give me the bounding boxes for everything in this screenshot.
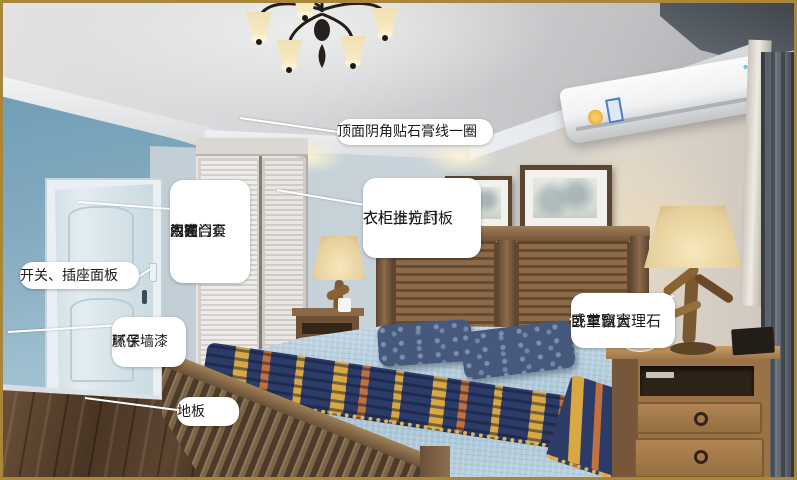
- mug: [338, 298, 351, 312]
- annotation-switch-panel: 开关、插座面板: [20, 262, 139, 289]
- wall-art-right: [520, 165, 612, 232]
- footboard-post: [420, 446, 450, 480]
- table-lamp-left-shade: [312, 236, 366, 280]
- annotation-bay-window: 卧室飘窗 或单窗大理石: [571, 293, 675, 348]
- annotation-text: 开关、插座面板: [20, 266, 118, 286]
- pillow-left: [377, 319, 474, 367]
- nightstand-left-top: [292, 308, 364, 316]
- annotation-ceiling-line: 顶面阴角贴石膏线一圈: [337, 119, 493, 145]
- table-lamp-right-shade: [644, 206, 742, 268]
- wardrobe-top-filler-panel: [196, 138, 308, 156]
- annotation-text: 地板: [177, 402, 205, 422]
- annotation-text: 顶面阴角贴石膏线一圈: [337, 122, 477, 142]
- annotation-wardrobe: 衣柜 衣柜推拉门 衣柜上方封板: [363, 178, 481, 258]
- drawer-ring-pull: [694, 450, 708, 464]
- drawer-top: [636, 402, 762, 434]
- door-handle: [142, 290, 147, 304]
- chandelier: [237, 0, 407, 92]
- brand-sticker: [605, 97, 624, 123]
- nightstand-right-shelf: [640, 366, 754, 396]
- light-switch: [149, 263, 157, 282]
- drawer-bottom: [634, 438, 764, 478]
- wall-art-sketch: [533, 178, 597, 218]
- annotation-door: 门碰 门锁 生态门 木门合页 双面门套: [170, 180, 250, 283]
- annotation-text: 衣柜上方封板: [363, 206, 453, 230]
- annotation-floor: 地板: [177, 397, 239, 426]
- annotation-text: 环保墙漆: [112, 331, 168, 353]
- table-lamp-right-foot: [670, 342, 716, 355]
- annotated-bedroom-photo: 顶面阴角贴石膏线一圈 门碰 门锁 生态门 木门合页 双面门套 开关、插座面板 腻…: [0, 0, 797, 480]
- shelf-item: [646, 372, 674, 378]
- wall-light-glow: [420, 140, 500, 174]
- drawer-ring-pull: [694, 412, 708, 426]
- annotation-text: 双面门套: [170, 222, 226, 242]
- annotation-text: 或单窗大理石: [571, 309, 661, 333]
- annotation-wall-paint: 腻子 环保墙漆: [112, 317, 186, 367]
- radio: [731, 327, 775, 356]
